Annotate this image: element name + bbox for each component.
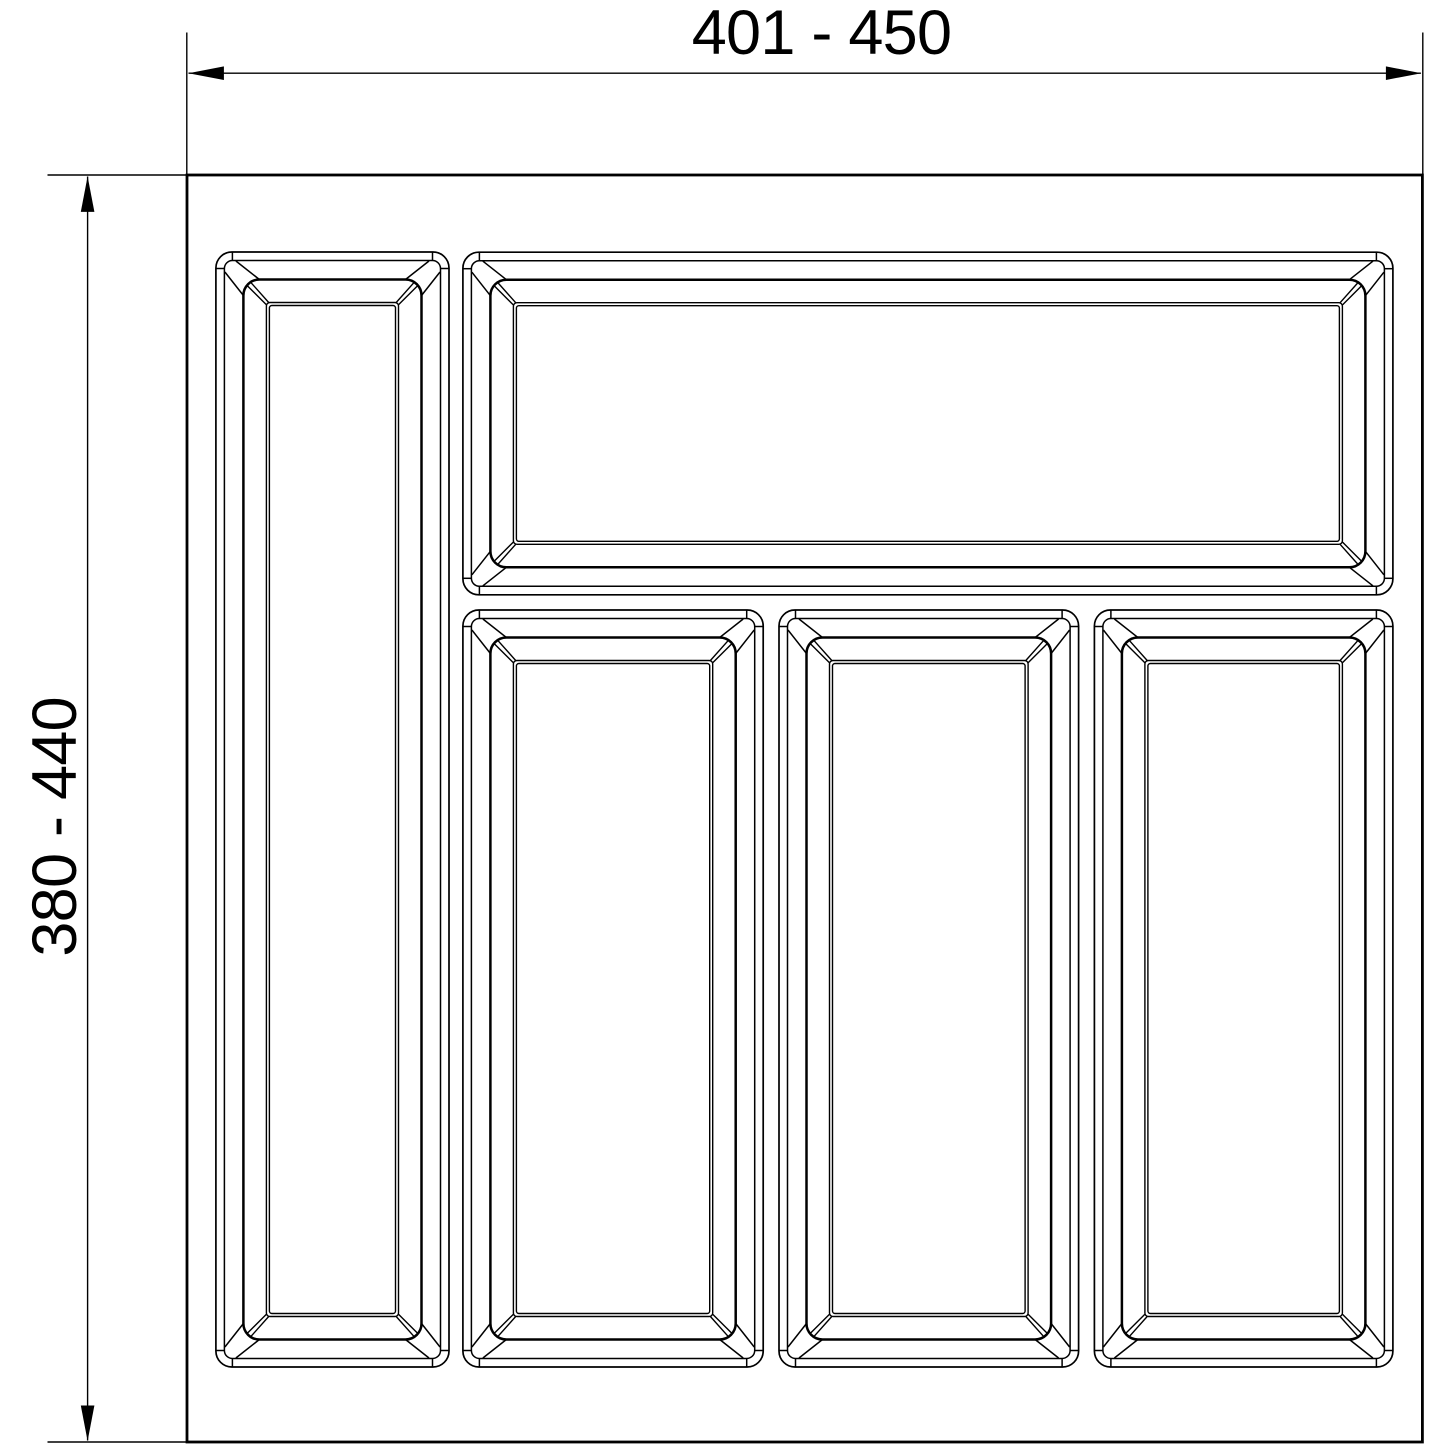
svg-text:380 - 440: 380 - 440 [20, 697, 90, 956]
svg-text:401 - 450: 401 - 450 [692, 0, 951, 68]
